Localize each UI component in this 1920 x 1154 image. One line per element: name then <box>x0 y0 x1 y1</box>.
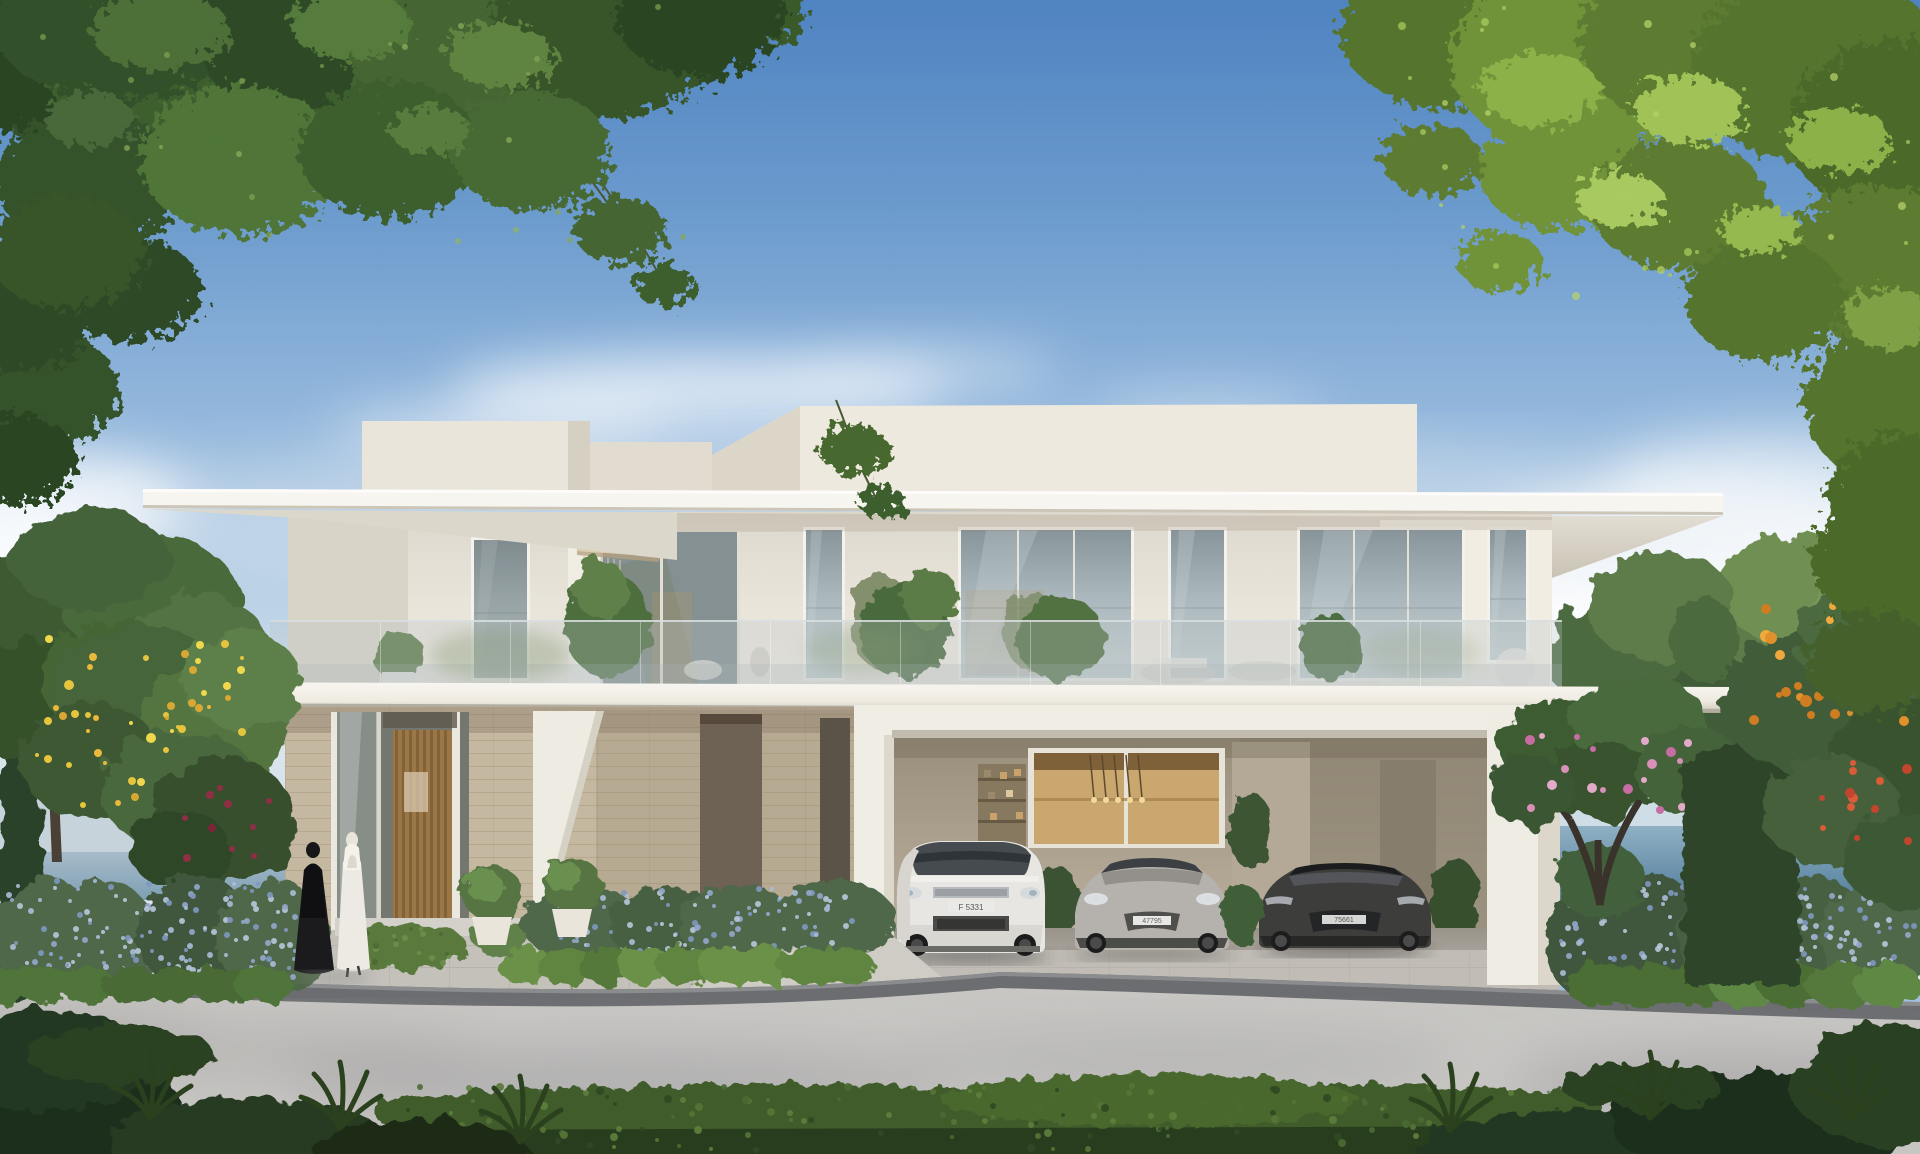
svg-text:F 5331: F 5331 <box>959 903 984 912</box>
svg-text:75661: 75661 <box>1334 917 1354 924</box>
svg-text:47795: 47795 <box>1142 918 1162 925</box>
